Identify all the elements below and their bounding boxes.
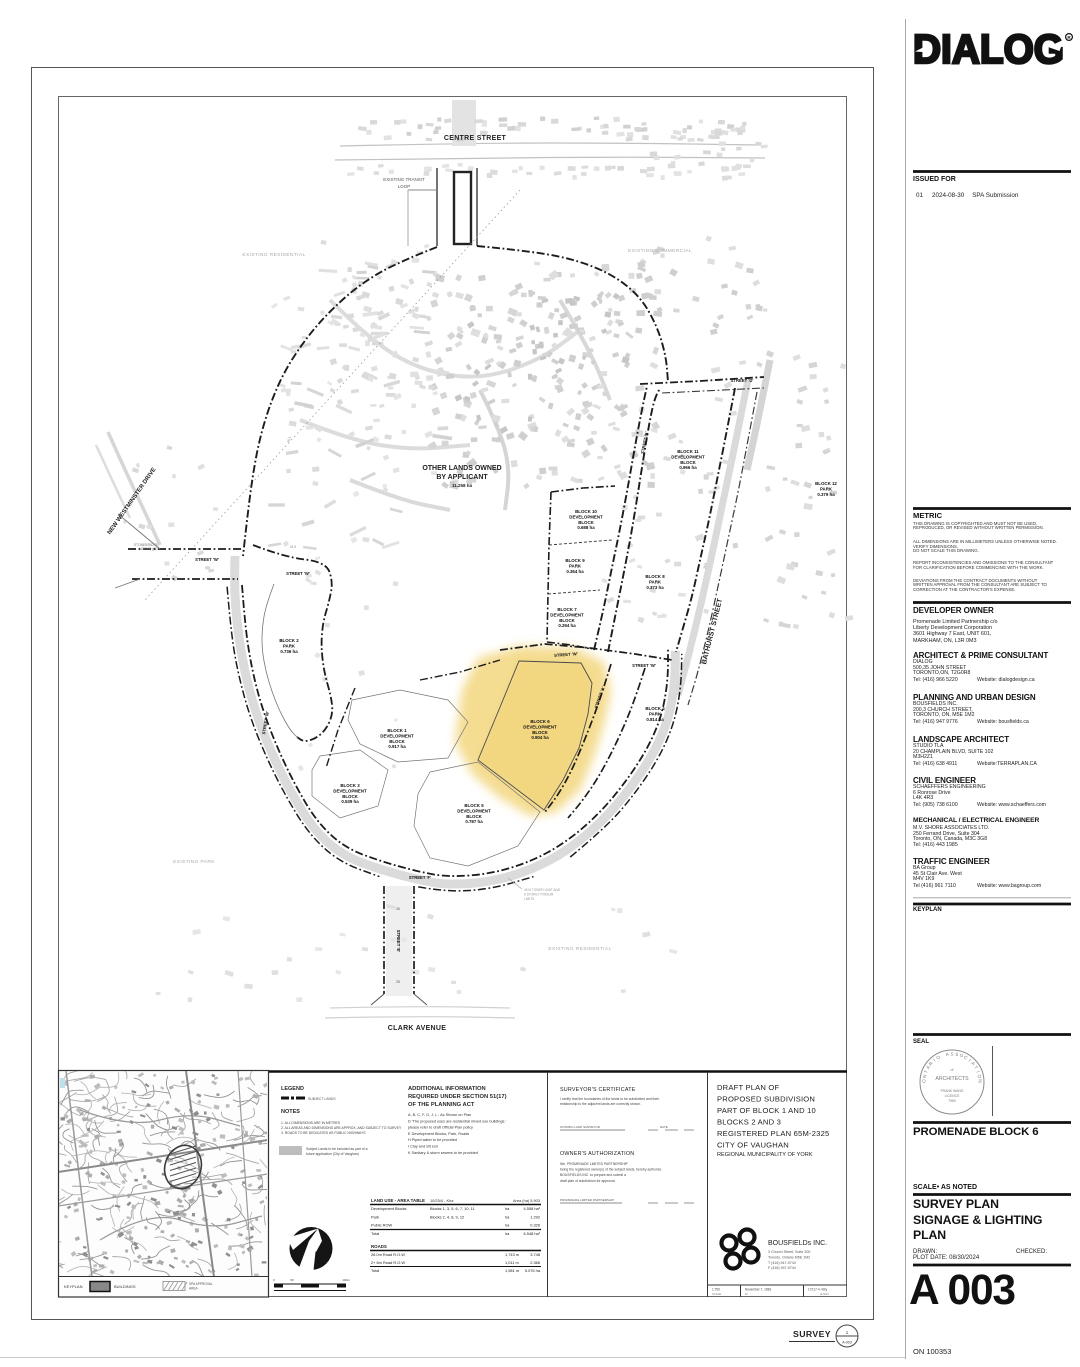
svg-text:STREET 'D': STREET 'D' xyxy=(731,378,754,383)
svg-text:STREET 'F': STREET 'F' xyxy=(409,875,431,880)
svg-text:0.917 ha: 0.917 ha xyxy=(388,744,406,749)
svg-text:PROPOSED SUBDIVISION: PROPOSED SUBDIVISION xyxy=(717,1095,815,1104)
svg-text:DEVELOPMENT: DEVELOPMENT xyxy=(380,733,414,738)
svg-text:AREA: AREA xyxy=(189,1287,199,1291)
svg-text:CENTRE STREET: CENTRE STREET xyxy=(444,135,507,142)
svg-text:future application (City of V: future application (City of Vaughan) xyxy=(306,1152,359,1156)
svg-text:LOOP: LOOP xyxy=(398,184,411,189)
svg-text:Total: Total xyxy=(371,1268,379,1273)
svg-text:LICENCE: LICENCE xyxy=(945,1094,960,1098)
svg-text:2. ALL AREAS AND DIMENSIONS AR: 2. ALL AREAS AND DIMENSIONS ARE APPROX. … xyxy=(281,1126,402,1130)
svg-text:2.366: 2.366 xyxy=(530,1260,540,1265)
svg-text:REGIONAL MUNICIPALITY OF YORK: REGIONAL MUNICIPALITY OF YORK xyxy=(717,1152,813,1158)
svg-text:REGISTERED PLAN 65M-2325: REGISTERED PLAN 65M-2325 xyxy=(717,1129,829,1138)
svg-text:17217-4 <Bry: 17217-4 <Bry xyxy=(808,1288,828,1292)
svg-text:Subject Lands to be included a: Subject Lands to be included as part of … xyxy=(306,1147,368,1151)
svg-text:0.294 ha: 0.294 ha xyxy=(558,623,576,628)
svg-text:BLOCK: BLOCK xyxy=(532,730,548,735)
svg-text:10/25/4 - Kha: 10/25/4 - Kha xyxy=(430,1198,454,1203)
svg-text:50: 50 xyxy=(290,1278,294,1282)
svg-text:BLOCK 8: BLOCK 8 xyxy=(645,574,665,579)
svg-text:K Sanitary & storm sewers t: K Sanitary & storm sewers to be provided xyxy=(408,1151,478,1155)
svg-text:1,981 m: 1,981 m xyxy=(505,1268,519,1273)
svg-text:We, PROMENADE LIMITED PARTNE: We, PROMENADE LIMITED PARTNERSHIP xyxy=(560,1162,629,1166)
svg-text:Toronto, Ontario M5E 1M2: Toronto, Ontario M5E 1M2 xyxy=(768,1255,810,1259)
svg-text:DEVELOPMENT: DEVELOPMENT xyxy=(671,454,705,459)
svg-text:STREET 'W': STREET 'W' xyxy=(195,557,219,562)
svg-text:EXISTING RESIDENTIAL: EXISTING RESIDENTIAL xyxy=(548,946,611,952)
svg-text:11.258 ha: 11.258 ha xyxy=(452,483,473,488)
svg-text:BY APPLICANT: BY APPLICANT xyxy=(436,474,488,481)
svg-text:0.814 ha: 0.814 ha xyxy=(646,717,664,722)
svg-text:0.373 ha: 0.373 ha xyxy=(646,585,664,590)
svg-text:EXISTING TRANSIT: EXISTING TRANSIT xyxy=(383,177,425,182)
svg-text:0.326: 0.326 xyxy=(530,1223,540,1228)
svg-text:KEYPLAN: KEYPLAN xyxy=(64,1284,83,1289)
svg-text:PART OF BLOCK 1 AND 10: PART OF BLOCK 1 AND 10 xyxy=(717,1106,816,1115)
svg-text:BLOCK 7: BLOCK 7 xyxy=(557,607,577,612)
svg-text:BLOCK: BLOCK xyxy=(466,814,482,819)
svg-text:ROADS: ROADS xyxy=(371,1244,387,1249)
svg-text:1,743 m: 1,743 m xyxy=(505,1252,519,1257)
svg-text:45 M TOWER LIMIT AND: 45 M TOWER LIMIT AND xyxy=(524,888,561,892)
svg-text:F (416) 947-9744: F (416) 947-9744 xyxy=(768,1266,796,1270)
svg-text:PARK: PARK xyxy=(283,643,296,648)
svg-text:NOTES: NOTES xyxy=(281,1109,300,1115)
svg-text:A-003: A-003 xyxy=(842,1341,852,1345)
svg-text:BLOCK 6: BLOCK 6 xyxy=(530,719,550,724)
svg-text:SCALE: SCALE xyxy=(712,1292,721,1296)
svg-text:OTHER LANDS OWNED: OTHER LANDS OWNED xyxy=(422,465,501,472)
svg-text:BLOCK: BLOCK xyxy=(342,794,358,799)
svg-text:0.966 ha: 0.966 ha xyxy=(679,465,697,470)
svg-text:24.5: 24.5 xyxy=(290,545,296,549)
svg-text:of: of xyxy=(951,1068,954,1072)
svg-text:I certify that the boundaries: I certify that the boundaries of the lan… xyxy=(560,1097,660,1101)
svg-text:E Development Blocks, Park,: E Development Blocks, Park, Roads xyxy=(408,1132,469,1136)
svg-text:please refer to draft Official: please refer to draft Official Plan poli… xyxy=(408,1126,473,1130)
svg-text:A, B, C, F, G, J, L : As Shown: A, B, C, F, G, J, L : As Shown on Plan xyxy=(408,1113,471,1117)
svg-text:PARK: PARK xyxy=(649,579,662,584)
svg-text:PARK: PARK xyxy=(820,486,833,491)
svg-text:25: 25 xyxy=(396,980,400,984)
svg-text:100m: 100m xyxy=(342,1278,350,1282)
svg-text:SPA APPROVAL: SPA APPROVAL xyxy=(189,1282,213,1286)
svg-text:DATE: DATE xyxy=(660,1125,668,1129)
svg-text:6 STOREY PODIUM: 6 STOREY PODIUM xyxy=(524,893,554,897)
svg-text:ARCHITECTS: ARCHITECTS xyxy=(935,1076,969,1082)
svg-text:3. ROADS TO BE DEDICATED AS PU: 3. ROADS TO BE DEDICATED AS PUBLIC HIGHW… xyxy=(281,1131,366,1135)
svg-text:BLOCK 4: BLOCK 4 xyxy=(645,706,665,711)
svg-text:BLOCK 3: BLOCK 3 xyxy=(340,783,360,788)
svg-text:DIALOG: DIALOG xyxy=(913,26,1064,72)
svg-text:Park: Park xyxy=(371,1215,379,1220)
svg-text:EXISTING COMMERCIAL: EXISTING COMMERCIAL xyxy=(628,248,692,254)
svg-text:Blocks 2, 4, 8, 9, 12: Blocks 2, 4, 8, 9, 12 xyxy=(430,1215,464,1220)
svg-text:PARK: PARK xyxy=(649,711,662,716)
svg-text:BOUSFIELDs INC.: BOUSFIELDs INC. xyxy=(768,1240,827,1247)
svg-text:CLARK AVENUE: CLARK AVENUE xyxy=(388,1025,446,1032)
svg-text:S: S xyxy=(950,1052,953,1057)
svg-text:ADDITIONAL INFORMATION: ADDITIONAL INFORMATION xyxy=(408,1086,486,1092)
svg-text:O: O xyxy=(921,1079,926,1083)
svg-text:3 Church Street, Suite 200: 3 Church Street, Suite 200 xyxy=(768,1250,810,1254)
svg-text:1. ALL DIMENSIONS ARE IN METRE: 1. ALL DIMENSIONS ARE IN METRES xyxy=(281,1121,341,1125)
svg-text:DEVELOPMENT: DEVELOPMENT xyxy=(523,724,557,729)
svg-text:BUILDINGS: BUILDINGS xyxy=(114,1284,136,1289)
svg-text:DRIVE: DRIVE xyxy=(141,547,152,551)
svg-text:1.292: 1.292 xyxy=(530,1215,540,1220)
svg-text:BLOCKS 2 AND 3: BLOCKS 2 AND 3 xyxy=(717,1118,781,1127)
svg-text:0.379 ha: 0.379 ha xyxy=(817,492,835,497)
svg-text:DEVELOPMENT: DEVELOPMENT xyxy=(457,808,491,813)
svg-text:0.736 ha: 0.736 ha xyxy=(280,649,298,654)
svg-text:Dr: Dr xyxy=(745,1292,748,1296)
svg-text:LEGEND: LEGEND xyxy=(281,1086,304,1092)
svg-text:being the registered owner(s): being the registered owner(s) of the sub… xyxy=(560,1168,662,1172)
svg-text:DEVELOPMENT: DEVELOPMENT xyxy=(333,788,367,793)
svg-text:Development Blocks: Development Blocks xyxy=(371,1206,407,1211)
svg-text:H Piped water to be provide: H Piped water to be provided xyxy=(408,1138,457,1142)
svg-text:1:750: 1:750 xyxy=(712,1288,720,1292)
svg-text:DRAFT PLAN OF: DRAFT PLAN OF xyxy=(717,1083,780,1092)
svg-text:T (416) 947-9744: T (416) 947-9744 xyxy=(768,1261,796,1265)
svg-text:BLOCK 1: BLOCK 1 xyxy=(387,728,407,733)
svg-text:LIMITS: LIMITS xyxy=(524,897,534,901)
svg-text:6.548 ha²: 6.548 ha² xyxy=(524,1231,541,1236)
svg-text:26: 26 xyxy=(396,907,400,911)
svg-text:DEVELOPMENT: DEVELOPMENT xyxy=(569,514,603,519)
svg-text:BOUSFIELDS INC.: BOUSFIELDS INC. to prepare and submit a xyxy=(560,1173,626,1177)
svg-text:0.904 ha: 0.904 ha xyxy=(531,735,549,740)
svg-text:BLOCK 11: BLOCK 11 xyxy=(677,449,699,454)
svg-text:Total: Total xyxy=(371,1231,379,1236)
svg-text:BLOCK 2: BLOCK 2 xyxy=(279,638,299,643)
svg-text:BLOCK: BLOCK xyxy=(578,520,594,525)
svg-text:BLOCK: BLOCK xyxy=(559,618,575,623)
svg-text:ONTARIO LAND SURVEYOR: ONTARIO LAND SURVEYOR xyxy=(560,1125,601,1129)
svg-text:BLOCK 10: BLOCK 10 xyxy=(575,509,597,514)
svg-text:STREET 'W': STREET 'W' xyxy=(632,663,656,668)
svg-text:SURVEY: SURVEY xyxy=(793,1329,831,1339)
svg-text:EXISTING RESIDENTIAL: EXISTING RESIDENTIAL xyxy=(242,252,305,258)
svg-text:BLOCK 5: BLOCK 5 xyxy=(464,803,484,808)
svg-text:7980: 7980 xyxy=(948,1099,956,1103)
svg-text:FRANK WANG: FRANK WANG xyxy=(941,1089,964,1093)
svg-text:OWNER'S AUTHORIZATION: OWNER'S AUTHORIZATION xyxy=(560,1151,634,1157)
svg-text:BLOCK 9: BLOCK 9 xyxy=(565,558,585,563)
svg-text:2+ 6m Road R.O.W: 2+ 6m Road R.O.W xyxy=(371,1260,405,1265)
svg-text:SUBJECT LANDS: SUBJECT LANDS xyxy=(308,1097,336,1101)
svg-text:PARK: PARK xyxy=(569,563,582,568)
svg-text:LAND USE - AREA TABLE: LAND USE - AREA TABLE xyxy=(371,1198,425,1203)
svg-text:BLOCK: BLOCK xyxy=(680,460,696,465)
svg-text:D 'The proposed uses are re: D 'The proposed uses are residential mix… xyxy=(408,1119,506,1123)
svg-text:0.539 ha: 0.539 ha xyxy=(341,799,359,804)
svg-text:BLOCK 12: BLOCK 12 xyxy=(815,481,837,486)
svg-text:N: N xyxy=(977,1079,982,1083)
svg-text:SURVEYOR'S CERTIFICATE: SURVEYOR'S CERTIFICATE xyxy=(560,1087,636,1093)
svg-text:STREET 'E': STREET 'E' xyxy=(396,930,401,952)
svg-text:REQUIRED UNDER SECTION 51(17): REQUIRED UNDER SECTION 51(17) xyxy=(408,1094,507,1100)
svg-text:I Clay and silt soil: I Clay and silt soil xyxy=(408,1145,438,1149)
svg-text:5.076 ha: 5.076 ha xyxy=(525,1268,541,1273)
svg-text:relationship to the adjacent: relationship to the adjacent lands are c… xyxy=(560,1102,641,1106)
svg-text:0.364 ha: 0.364 ha xyxy=(566,569,584,574)
svg-text:26.0m Road R.O.W: 26.0m Road R.O.W xyxy=(371,1252,405,1257)
svg-text:STREET 'W': STREET 'W' xyxy=(286,571,310,576)
svg-text:PROMENADE LIMITED PARTNERSHIP: PROMENADE LIMITED PARTNERSHIP xyxy=(560,1198,614,1202)
svg-text:Blocks 1, 3, 5, 6, 7, 10, 11: Blocks 1, 3, 5, 6, 7, 10, 11 xyxy=(430,1206,475,1211)
svg-text:November 7, 1983: November 7, 1983 xyxy=(745,1288,771,1292)
svg-text:Area (ha) 5.903: Area (ha) 5.903 xyxy=(513,1198,540,1203)
svg-text:pLNG1: pLNG1 xyxy=(820,1292,829,1296)
svg-text:draft plan of subdivision for: draft plan of subdivision for approval. xyxy=(560,1179,615,1183)
svg-text:Public ROW: Public ROW xyxy=(371,1223,393,1228)
svg-text:DEVELOPMENT: DEVELOPMENT xyxy=(550,612,584,617)
svg-text:0.688 ha: 0.688 ha xyxy=(577,525,595,530)
svg-text:CITY OF VAUGHAN: CITY OF VAUGHAN xyxy=(717,1141,789,1150)
svg-text:BLOCK: BLOCK xyxy=(389,739,405,744)
svg-text:4.558 ha²: 4.558 ha² xyxy=(524,1206,541,1211)
svg-text:OF THE PLANNING ACT: OF THE PLANNING ACT xyxy=(408,1102,475,1108)
svg-text:EXISTING PARK: EXISTING PARK xyxy=(173,859,215,865)
svg-text:1,011 m: 1,011 m xyxy=(505,1260,519,1265)
svg-text:3.748: 3.748 xyxy=(530,1252,540,1257)
svg-text:0.787 ha: 0.787 ha xyxy=(465,819,483,824)
